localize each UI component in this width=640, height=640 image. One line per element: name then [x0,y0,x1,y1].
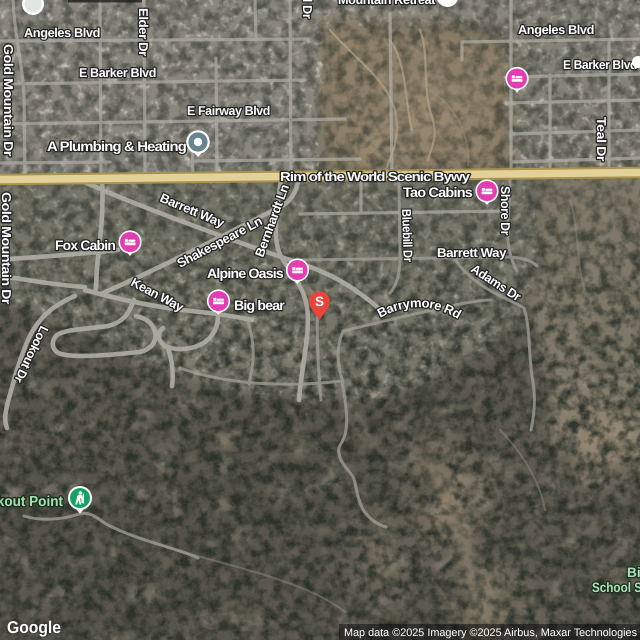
svg-text:Lookout Point: Lookout Point [0,494,63,510]
svg-text:Shore Dr: Shore Dr [498,186,513,235]
svg-text:Rim of the World Scenic Bywy: Rim of the World Scenic Bywy [280,169,471,184]
svg-text:Mountain Retreat: Mountain Retreat [338,0,436,7]
svg-text:A Plumbing & Heating: A Plumbing & Heating [47,139,186,154]
svg-text:Google: Google [7,618,61,637]
svg-text:S: S [315,294,324,309]
svg-text:Big bear: Big bear [234,298,285,313]
svg-text:Alpine Oasis: Alpine Oasis [207,266,283,281]
svg-text:School S: School S [592,580,640,595]
svg-text:E Barker Blvd: E Barker Blvd [79,65,156,80]
svg-text:Gold Mountain Dr: Gold Mountain Dr [0,192,14,304]
svg-text:Map data ©2025 Imagery ©2025 A: Map data ©2025 Imagery ©2025 Airbus, Max… [344,627,638,639]
svg-text:Angeles Blvd: Angeles Blvd [24,25,100,40]
svg-text:Barrett Way: Barrett Way [437,245,507,260]
svg-text:Bluebill Dr: Bluebill Dr [399,209,416,263]
svg-text:Tao Cabins: Tao Cabins [403,185,473,200]
svg-text:Gold Mountain Dr: Gold Mountain Dr [1,44,16,156]
svg-text:Teal Dr: Teal Dr [594,117,609,161]
svg-text:Angeles Blvd: Angeles Blvd [518,22,594,37]
svg-text:al Dr: al Dr [300,0,315,19]
svg-text:Fox Cabin: Fox Cabin [55,238,115,253]
svg-text:Bi: Bi [627,565,640,580]
svg-text:E Barker Blvd: E Barker Blvd [563,57,637,72]
svg-text:Elder Dr: Elder Dr [136,8,151,56]
svg-text:E Fairway Blvd: E Fairway Blvd [187,103,270,118]
